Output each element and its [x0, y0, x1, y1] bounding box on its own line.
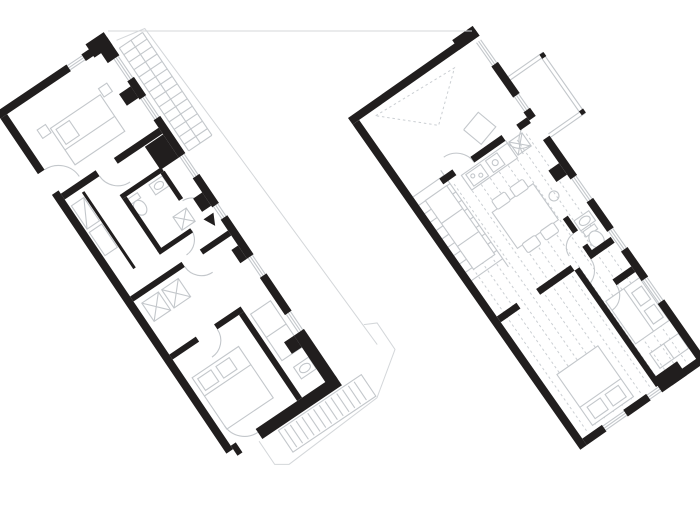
window	[182, 155, 196, 176]
layout-triangle	[376, 63, 477, 152]
window	[180, 157, 194, 178]
door-arc	[100, 164, 131, 195]
partition	[214, 306, 244, 329]
wardrobe-line	[664, 344, 674, 359]
bath-wall	[157, 228, 193, 255]
partition	[497, 303, 521, 322]
floor-heating-line	[508, 146, 667, 374]
window	[118, 56, 133, 78]
floor-plans-canvas	[0, 0, 700, 525]
door-arc	[201, 329, 229, 357]
outer-wall-bottom	[582, 425, 606, 445]
partition	[200, 231, 232, 255]
floor-plan-right	[346, 1, 700, 450]
window	[286, 314, 298, 332]
stool	[547, 189, 561, 203]
door-arc	[185, 256, 213, 284]
floor-plan-left	[0, 0, 415, 490]
nightstand	[37, 124, 51, 138]
outer-wall-left	[52, 190, 233, 453]
window	[613, 228, 627, 248]
window	[184, 154, 198, 175]
bath-wall	[563, 216, 578, 234]
window	[610, 230, 624, 250]
window	[114, 59, 129, 81]
outer-wall-left	[0, 114, 44, 174]
floor-plan-page	[0, 0, 700, 525]
balcony-post	[539, 52, 546, 59]
window	[252, 255, 265, 274]
wardrobe-line	[266, 324, 286, 337]
section-marker	[203, 213, 220, 230]
window	[145, 96, 159, 117]
partition	[169, 337, 199, 360]
window	[250, 257, 263, 276]
shower-line	[173, 208, 195, 230]
window	[248, 258, 261, 277]
bed	[606, 278, 669, 344]
window	[288, 313, 300, 331]
balcony-post	[579, 108, 586, 115]
window	[574, 177, 590, 200]
window	[141, 99, 155, 120]
window	[290, 311, 302, 329]
window	[479, 41, 495, 64]
window	[606, 415, 627, 430]
outer-wall-top	[0, 64, 71, 118]
outer-wall-right	[491, 62, 519, 98]
partition	[61, 170, 100, 199]
